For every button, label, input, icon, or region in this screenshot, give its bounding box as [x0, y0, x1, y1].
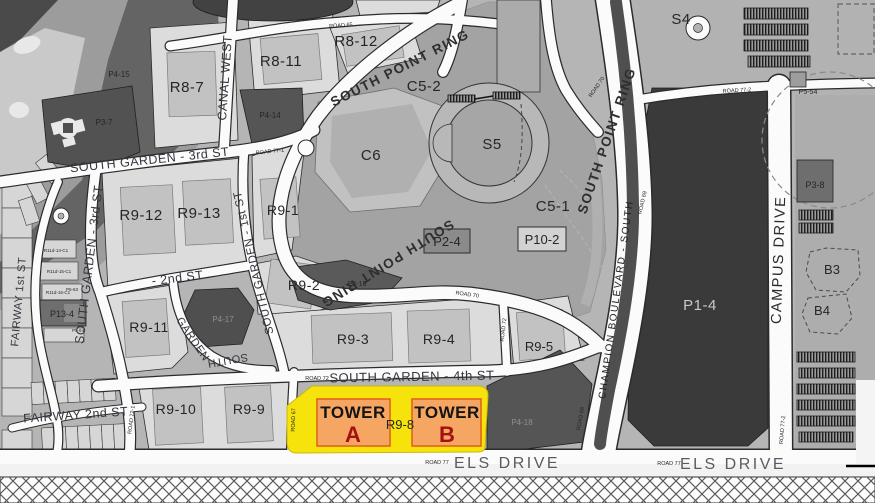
label-r9-5: R9-5: [525, 339, 553, 354]
label-p4-15: P4-15: [108, 70, 130, 79]
street-els-drive-e: ELS DRIVE: [680, 456, 786, 473]
road-77-e: ROAD 77: [657, 461, 681, 467]
label-r9-12: R9-12: [119, 207, 162, 224]
label-b4: B4: [814, 303, 830, 318]
label-p5-54: P5-54: [799, 89, 818, 96]
road-72-4th: ROAD 72: [305, 376, 329, 382]
label-r9-11: R9-11: [129, 319, 169, 335]
label-p3-8: P3-8: [805, 180, 824, 190]
label-r11d-16: R11d-16-C1: [46, 290, 71, 295]
label-r9-13: R9-13: [177, 205, 220, 222]
stadium-gate-icon: [448, 95, 475, 102]
parcel-p5-54: [790, 72, 806, 87]
label-c5-2: C5-2: [407, 78, 442, 95]
label-r8-12: R8-12: [334, 33, 377, 50]
road-77-w: ROAD 77: [425, 460, 449, 466]
label-p3-7: P3-7: [96, 118, 113, 127]
label-r9-1: R9-1: [267, 202, 299, 218]
tower-a-word: TOWER: [320, 403, 385, 422]
label-c6: C6: [361, 147, 381, 164]
label-r9-3: R9-3: [337, 331, 369, 347]
label-r9-4: R9-4: [423, 331, 455, 347]
tower-a-letter: A: [345, 422, 361, 447]
label-r9-2: R9-2: [288, 277, 320, 293]
label-c5-1: C5-1: [536, 198, 571, 215]
label-p4-18: P4-18: [511, 418, 533, 427]
label-b3: B3: [824, 262, 840, 277]
stadium-gate-icon: [493, 92, 520, 99]
label-p4-17: P4-17: [212, 315, 234, 324]
tower-b-letter: B: [439, 422, 455, 447]
label-p4-14: P4-14: [259, 111, 281, 120]
label-r9-10: R9-10: [156, 401, 197, 417]
label-r11d-15: R11d-15-C1: [47, 269, 72, 274]
street-garden-4th: SOUTH GARDEN - 4th ST: [329, 368, 494, 386]
label-s4: S4: [671, 11, 690, 28]
road-67: ROAD 67: [291, 408, 298, 432]
parcel-map: R8-7 R8-11 R8-12 S4 C5-2 S5 C6 C5-1 P2-4…: [0, 0, 875, 503]
map-canvas: R8-7 R8-11 R8-12 S4 C5-2 S5 C6 C5-1 P2-4…: [0, 0, 875, 503]
tower-b-word: TOWER: [414, 403, 479, 422]
label-s5: S5: [482, 136, 501, 153]
label-p1-4: P1-4: [683, 297, 717, 314]
label-p10-2: P10-2: [525, 232, 560, 247]
label-p13-4: P13-4: [50, 309, 74, 319]
label-r11d-14: R11d-14-C1: [44, 248, 69, 253]
street-els-drive-w: ELS DRIVE: [454, 455, 560, 472]
label-r8-7: R8-7: [170, 79, 205, 96]
label-r8-11: R8-11: [260, 53, 302, 70]
label-r9-8: R9-8: [386, 417, 414, 432]
label-r9-9: R9-9: [233, 401, 265, 417]
